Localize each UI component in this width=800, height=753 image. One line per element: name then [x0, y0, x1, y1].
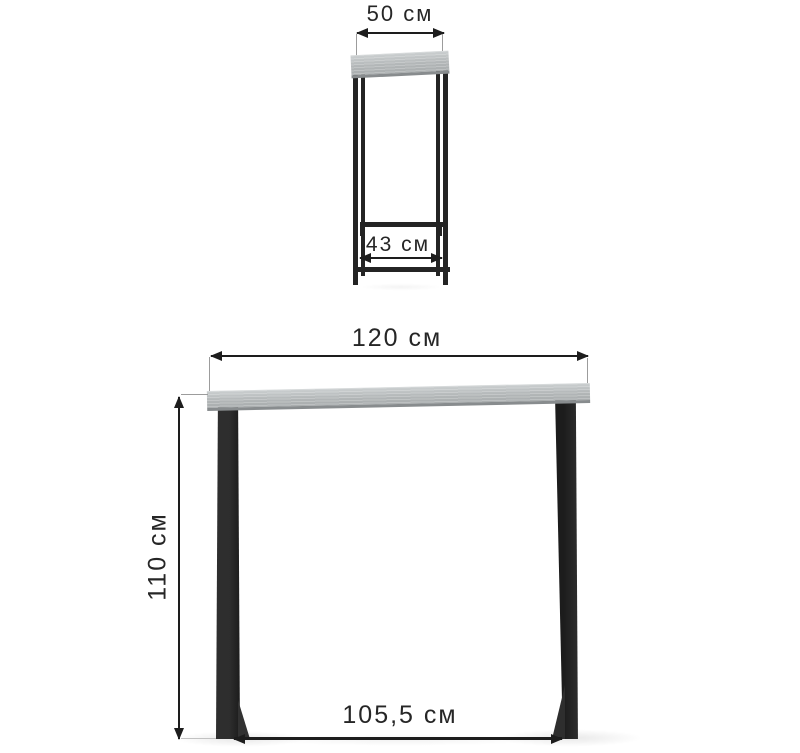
front-top-width-dimension-arrow — [211, 355, 588, 357]
front-left-leg — [216, 400, 240, 739]
side-base-depth-dimension-arrow — [360, 257, 442, 259]
height-extension-line-bottom — [181, 738, 216, 739]
side-view-floor-shadow — [345, 282, 457, 292]
front-extension-line-left — [209, 357, 210, 391]
front-base-width-label: 105,5 см — [310, 701, 490, 730]
side-upper-stretcher-bar — [360, 222, 443, 227]
table-dimension-diagram: 50 см 43 см 120 см — [0, 0, 800, 753]
side-top-width-label: 50 см — [330, 1, 470, 27]
front-floor-shadow-center — [200, 732, 600, 748]
side-top-width-dimension-arrow — [357, 32, 444, 34]
side-tabletop — [350, 51, 449, 79]
side-bottom-bar — [354, 267, 450, 272]
front-right-leg — [553, 399, 579, 739]
side-base-depth-label: 43 см — [328, 233, 468, 257]
front-height-label: 110 см — [144, 457, 173, 657]
front-height-dimension-arrow — [178, 397, 180, 739]
front-tabletop — [207, 383, 590, 411]
height-extension-line-top — [181, 394, 208, 395]
front-top-width-label: 120 см — [327, 324, 467, 353]
front-base-width-dimension-arrow — [234, 737, 562, 740]
